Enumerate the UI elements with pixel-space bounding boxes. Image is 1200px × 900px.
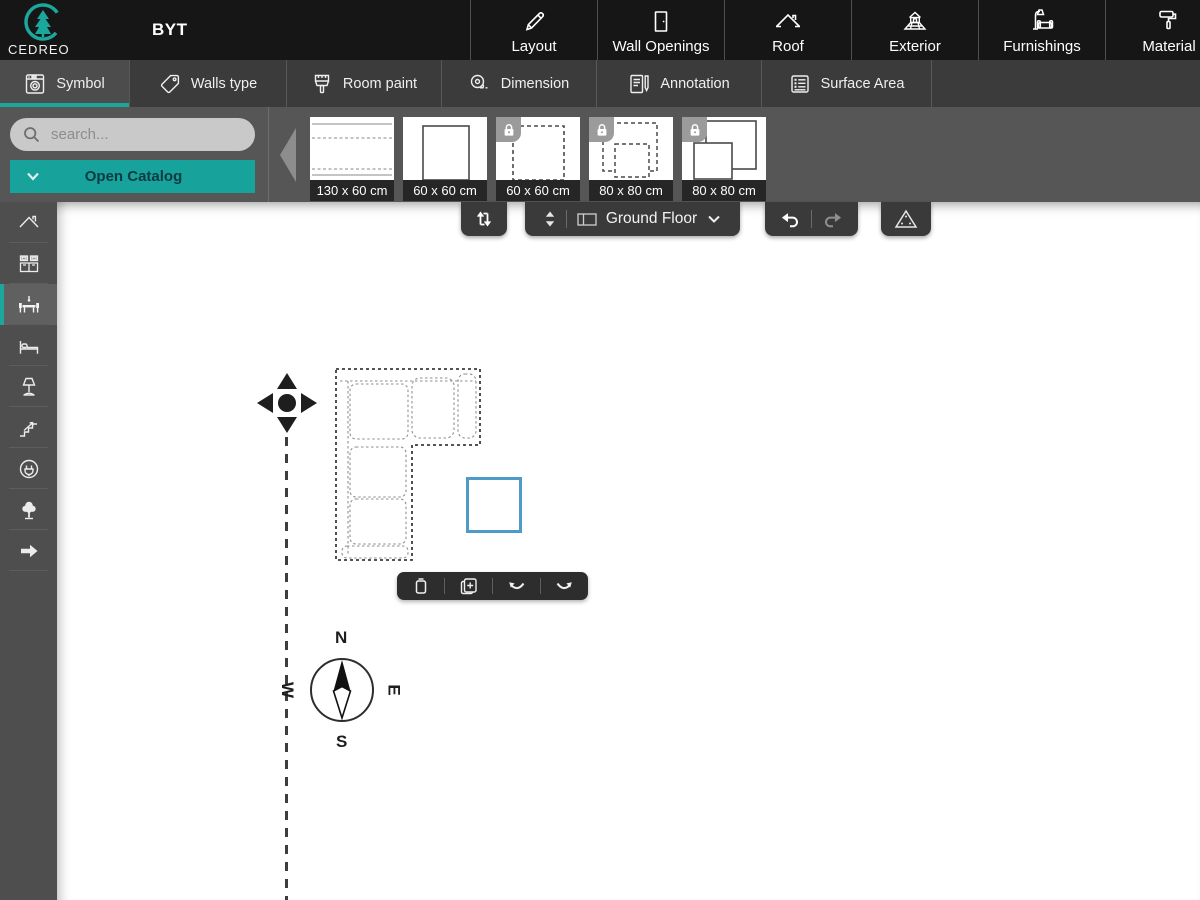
compass-north-label: N: [335, 628, 347, 648]
selected-square-symbol[interactable]: [466, 477, 522, 533]
nav-item-roof[interactable]: Roof: [724, 0, 851, 60]
lamp-icon: [17, 375, 41, 399]
tab-walls-type[interactable]: Walls type: [130, 60, 287, 107]
delete-button[interactable]: [406, 572, 436, 600]
tab-label: Symbol: [56, 76, 104, 92]
nav-item-material[interactable]: Material: [1105, 0, 1200, 60]
rail-item-lighting[interactable]: [0, 366, 57, 407]
catalog-item-60x60-locked[interactable]: 60 x 60 cm: [496, 117, 580, 201]
tag-icon: [159, 73, 181, 95]
symbol-thumbnail: [310, 117, 394, 180]
list-icon: [789, 73, 811, 95]
compass-west-label: W: [277, 682, 297, 698]
symbol-size-label: 130 x 60 cm: [310, 180, 394, 201]
tab-symbol[interactable]: Symbol: [0, 60, 130, 107]
rail-item-stairs[interactable]: [0, 407, 57, 448]
measuring-tape-icon: [469, 73, 491, 95]
selection-toolbar: [397, 572, 588, 600]
open-catalog-label: Open Catalog: [40, 168, 227, 185]
nav-label: Exterior: [889, 38, 941, 55]
brand-name: CEDREO: [8, 42, 78, 57]
nav-item-wall-openings[interactable]: Wall Openings: [597, 0, 724, 60]
duplicate-icon: [459, 577, 478, 596]
rect-lines-symbol: [310, 117, 394, 180]
trash-icon: [413, 577, 429, 595]
divider: [444, 578, 445, 594]
lock-icon: [496, 117, 521, 142]
kitchen-cabinet-icon: [17, 252, 41, 276]
tree-logo-icon: [21, 2, 65, 44]
redo-button[interactable]: [818, 205, 848, 233]
lamp-sofa-icon: [1028, 8, 1056, 36]
duplicate-button[interactable]: [454, 572, 484, 600]
door-icon: [647, 8, 675, 36]
divider: [566, 210, 567, 228]
rail-item-roof[interactable]: [0, 202, 57, 243]
nav-label: Wall Openings: [613, 38, 710, 55]
roof-chevron-icon: [17, 211, 41, 235]
symbol-size-label: 60 x 60 cm: [403, 180, 487, 201]
tab-label: Surface Area: [821, 76, 905, 92]
stairs-icon: [17, 416, 41, 440]
symbol-thumbnail: [682, 117, 766, 180]
swap-view-button[interactable]: [461, 202, 507, 236]
drafting-triangle-icon: [894, 208, 918, 230]
rotate-ccw-button[interactable]: [502, 572, 532, 600]
lock-icon: [682, 117, 707, 142]
lock-icon: [589, 117, 614, 142]
symbol-size-list: 130 x 60 cm 60 x 60 cm: [310, 117, 766, 201]
move-widget[interactable]: [255, 371, 319, 440]
rail-item-garden[interactable]: [0, 489, 57, 530]
cedreo-logo[interactable]: CEDREO: [8, 2, 78, 58]
paint-brush-icon: [311, 73, 333, 95]
tab-label: Room paint: [343, 76, 417, 92]
rail-item-more[interactable]: [0, 530, 57, 571]
arrow-right-icon: [17, 539, 41, 563]
project-title: BYT: [152, 20, 188, 40]
divider: [811, 210, 812, 228]
power-outlet-icon: [17, 457, 41, 481]
catalog-item-130x60[interactable]: 130 x 60 cm: [310, 117, 394, 201]
rotate-cw-icon: [555, 579, 574, 593]
solid-square-symbol: [403, 117, 487, 180]
top-navigation: Layout Wall Openings Roof: [470, 0, 1200, 60]
tab-dimension[interactable]: Dimension: [442, 60, 597, 107]
up-down-spinner-icon[interactable]: [544, 209, 556, 229]
nav-label: Roof: [772, 38, 804, 55]
search-input[interactable]: [51, 126, 231, 143]
compass[interactable]: N S E W: [278, 622, 408, 762]
chevron-down-icon: [707, 214, 721, 224]
symbol-size-label: 80 x 80 cm: [682, 180, 766, 201]
rail-item-kitchen[interactable]: [0, 243, 57, 284]
nav-label: Layout: [511, 38, 556, 55]
swap-arrows-icon: [473, 208, 495, 230]
nav-label: Material: [1142, 38, 1195, 55]
nav-item-layout[interactable]: Layout: [470, 0, 597, 60]
divider: [492, 578, 493, 594]
drafting-triangle-button[interactable]: [881, 202, 931, 236]
floor-selector-label: Ground Floor: [606, 210, 697, 228]
app-window: CEDREO BYT Layout Wall Openings: [0, 0, 1200, 900]
redo-icon: [822, 210, 844, 228]
rail-item-electrical[interactable]: [0, 448, 57, 489]
tab-surface-area[interactable]: Surface Area: [762, 60, 932, 107]
compass-east-label: E: [384, 684, 404, 695]
undo-icon: [779, 210, 801, 228]
floor-plan-icon: [577, 212, 597, 227]
rotate-ccw-icon: [507, 579, 526, 593]
undo-button[interactable]: [775, 205, 805, 233]
catalog-item-80x80-solid-locked[interactable]: 80 x 80 cm: [682, 117, 766, 201]
chevron-down-icon: [26, 171, 40, 182]
symbol-thumbnail: [589, 117, 673, 180]
catalog-item-60x60[interactable]: 60 x 60 cm: [403, 117, 487, 201]
nav-item-furnishings[interactable]: Furnishings: [978, 0, 1105, 60]
rail-item-bedroom[interactable]: [0, 325, 57, 366]
tree-icon: [17, 498, 41, 522]
corner-sofa-symbol[interactable]: [330, 362, 486, 571]
search-icon: [23, 126, 41, 144]
nav-item-exterior[interactable]: Exterior: [851, 0, 978, 60]
tab-room-paint[interactable]: Room paint: [287, 60, 442, 107]
nav-label: Furnishings: [1003, 38, 1081, 55]
search-box[interactable]: [10, 118, 255, 151]
bed-icon: [17, 334, 41, 358]
tab-annotation[interactable]: Annotation: [597, 60, 762, 107]
panel-divider: [268, 107, 269, 202]
dining-table-icon: [17, 293, 41, 317]
symbol-catalog-panel: Open Catalog 130 x 60 cm: [0, 107, 1200, 202]
rotate-cw-button[interactable]: [550, 572, 580, 600]
symbol-category-rail: [0, 202, 57, 900]
collapse-strip-arrow-icon[interactable]: [280, 128, 296, 182]
divider: [540, 578, 541, 594]
notepad-pen-icon: [628, 73, 650, 95]
pencil-icon: [520, 8, 548, 36]
top-menu-bar: CEDREO BYT Layout Wall Openings: [0, 0, 1200, 60]
roof-icon: [774, 8, 802, 36]
open-catalog-button[interactable]: Open Catalog: [10, 160, 255, 193]
undo-redo-group: [765, 202, 858, 236]
floor-selector[interactable]: Ground Floor: [525, 202, 740, 236]
tab-label: Dimension: [501, 76, 570, 92]
paint-roller-icon: [1155, 8, 1183, 36]
tab-label: Walls type: [191, 76, 257, 92]
washing-machine-icon: [24, 73, 46, 95]
catalog-item-80x80-locked[interactable]: 80 x 80 cm: [589, 117, 673, 201]
move-arrows-icon: [255, 371, 319, 435]
tab-label: Annotation: [660, 76, 729, 92]
floor-plan-canvas[interactable]: [57, 202, 1200, 900]
symbol-thumbnail: [496, 117, 580, 180]
symbol-size-label: 80 x 80 cm: [589, 180, 673, 201]
compass-south-label: S: [336, 732, 347, 752]
symbol-thumbnail: [403, 117, 487, 180]
rail-item-dining[interactable]: [0, 284, 57, 325]
symbol-size-label: 60 x 60 cm: [496, 180, 580, 201]
exterior-house-icon: [901, 8, 929, 36]
mode-tab-bar: Symbol Walls type Room paint: [0, 60, 1200, 107]
